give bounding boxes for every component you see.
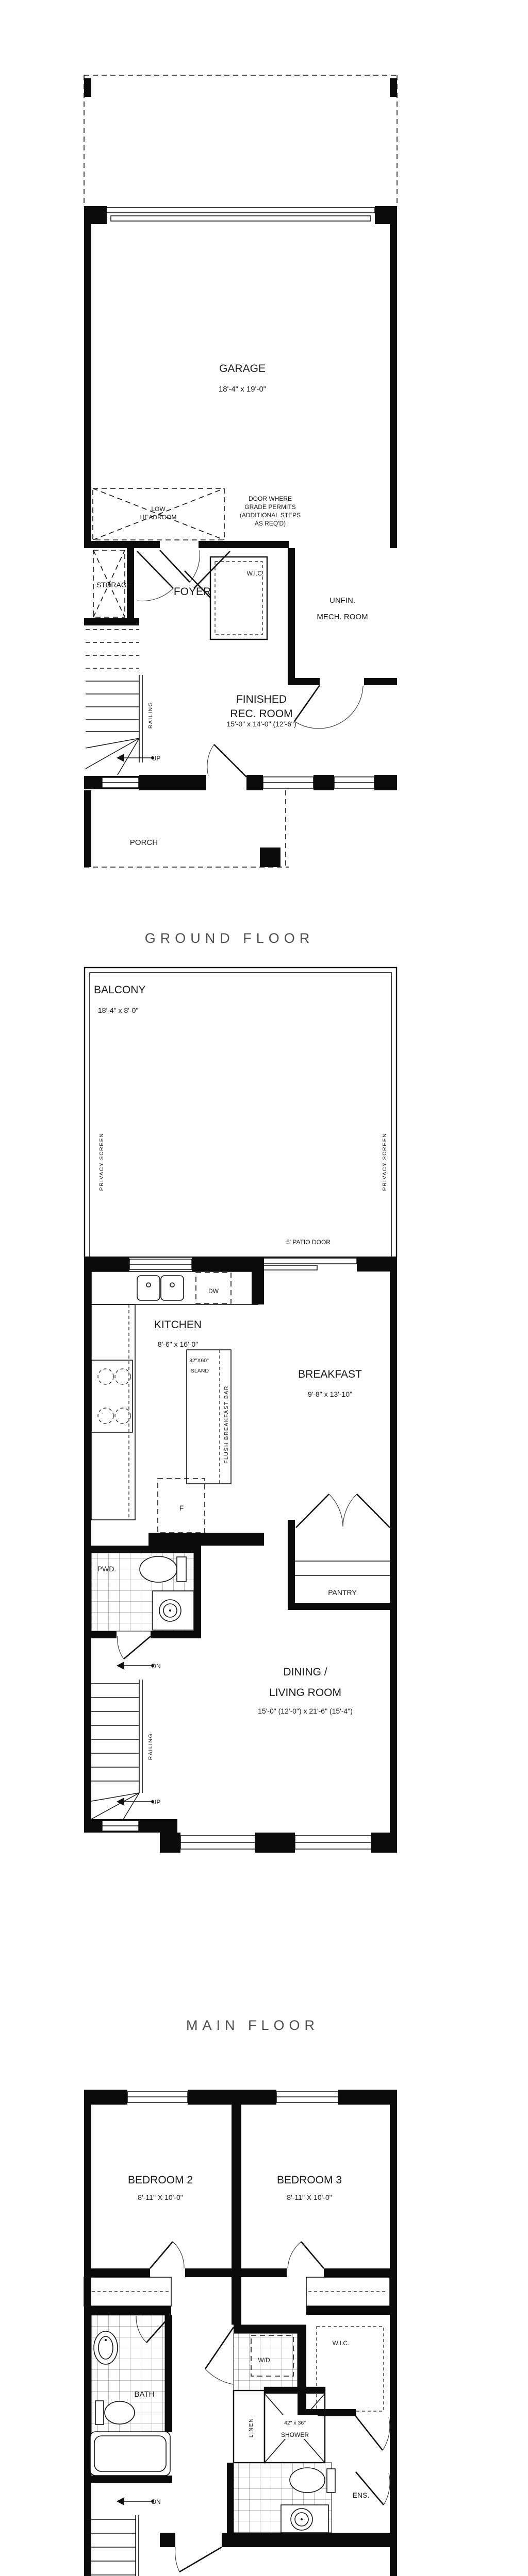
island-size-label: 32"X60": [189, 1358, 209, 1364]
kitchen-dims: 8'-6" x 16'-0": [158, 1340, 198, 1348]
floor-plan-drawing: GARAGE 18'-4" x 19'-0" DOOR WHERE GRADE …: [0, 0, 528, 2576]
second-dn-arrow: [117, 2497, 154, 2505]
ground-wic-label: W.I.C.: [247, 570, 264, 577]
garage-dims: 18'-4" x 19'-0": [219, 385, 266, 394]
bedroom3-dims: 8'-11" X 10'-0": [287, 2193, 332, 2201]
svg-text:HEADROOM: HEADROOM: [140, 514, 177, 521]
kitchen-side-counter: [91, 1304, 135, 1520]
rec-room-label-2: REC. ROOM: [230, 708, 292, 720]
dining-label-2: LIVING ROOM: [269, 1687, 341, 1699]
second-dn-label: DN: [152, 2498, 160, 2505]
porch-label: PORCH: [130, 838, 158, 847]
garage-label: GARAGE: [219, 363, 266, 375]
main-west-wall: [84, 1257, 91, 1819]
breakfast-dims: 9'-8" x 13'-10": [308, 1390, 352, 1398]
island-label: ISLAND: [189, 1368, 209, 1374]
second-floor-plan: BEDROOM 2 8'-11" X 10'-0" BEDROOM 3 8'-1…: [84, 2090, 397, 2576]
shower-label: SHOWER: [281, 2431, 309, 2438]
ground-railing-label: RAILING: [147, 702, 154, 729]
powder-room: [84, 1546, 201, 1659]
ground-floor-title: GROUND FLOOR: [145, 930, 315, 946]
svg-text:GRADE PERMITS: GRADE PERMITS: [244, 503, 295, 511]
breakfast-bar-label: FLUSH BREAKFAST BAR: [223, 1385, 229, 1464]
privacy-screen-left: PRIVACY SCREEN: [98, 1133, 105, 1191]
main-south-wall: [84, 1819, 397, 1853]
bath-room: [84, 2315, 172, 2483]
breakfast-label: BREAKFAST: [298, 1368, 362, 1380]
second-wic-label: W.I.C.: [333, 2340, 350, 2347]
second-east-wall: [390, 2090, 397, 2576]
garage-walls: [84, 206, 397, 548]
foyer-entry-door: [160, 550, 200, 582]
porch-area: [84, 790, 289, 867]
patio-door-label: 5' PATIO DOOR: [286, 1239, 331, 1246]
main-up-label: UP: [152, 1799, 161, 1806]
dishwasher-label: DW: [208, 1287, 219, 1295]
bath-label: BATH: [135, 2390, 155, 2399]
svg-text:AS REQ'D): AS REQ'D): [255, 520, 286, 527]
pantry-label: PANTRY: [328, 1588, 357, 1597]
main-floor-title: MAIN FLOOR: [186, 2018, 319, 2033]
svg-text:(ADDITIONAL STEPS: (ADDITIONAL STEPS: [240, 512, 301, 519]
grade-door-note: DOOR WHERE GRADE PERMITS (ADDITIONAL STE…: [240, 495, 301, 527]
main-railing-label: RAILING: [147, 1733, 154, 1760]
washer-dryer-label: W/D: [258, 2357, 270, 2364]
bedroom2-dims: 8'-11" X 10'-0": [138, 2193, 183, 2201]
fridge-label: F: [179, 1504, 184, 1512]
ground-floor-plan: GARAGE 18'-4" x 19'-0" DOOR WHERE GRADE …: [84, 75, 397, 946]
shower-size-label: 42" x 36": [284, 2420, 306, 2426]
mech-label-1: UNFIN.: [329, 596, 355, 605]
dining-dims: 15'-0" (12'-0") x 21'-6" (15'-4"): [258, 1707, 353, 1715]
driveway-outline: [84, 75, 397, 207]
storage-label: STORAGE: [96, 581, 131, 589]
laundry-closet: [205, 2325, 298, 2391]
mech-label-2: MECH. ROOM: [317, 613, 368, 621]
powder-label: PWD.: [97, 1565, 117, 1573]
dining-label-1: DINING /: [283, 1666, 327, 1678]
main-dn-arrow: [117, 1662, 154, 1670]
rec-room-dims: 15'-0" x 14'-0" (12'-6"): [227, 720, 296, 728]
mech-room: [288, 548, 397, 728]
floor-plan-page: GARAGE 18'-4" x 19'-0" DOOR WHERE GRADE …: [0, 0, 528, 2576]
kitchen-label: KITCHEN: [154, 1319, 202, 1331]
balcony-dims: 18'-4" x 8'-0": [98, 1006, 138, 1014]
main-floor-plan: BALCONY 18'-4" x 8'-0" PRIVACY SCREEN PR…: [84, 968, 397, 2033]
ground-up-arrow: [117, 754, 154, 762]
ensuite-label: ENS.: [353, 2491, 370, 2499]
main-north-wall: [84, 1257, 397, 1272]
privacy-screen-right: PRIVACY SCREEN: [382, 1133, 388, 1191]
rec-room-label-1: FINISHED: [236, 693, 287, 705]
low-headroom-area: LOW HEADROOM: [93, 488, 224, 540]
main-dn-label: DN: [152, 1663, 160, 1670]
second-north-wall: [84, 2090, 397, 2105]
kitchen-south-wall: [148, 1533, 264, 1546]
ground-stairs: [84, 618, 142, 775]
bedroom3-label: BEDROOM 3: [277, 2174, 342, 2186]
ground-up-label: UP: [152, 755, 161, 762]
garage-door: [84, 206, 397, 224]
svg-text:DOOR WHERE: DOOR WHERE: [249, 495, 292, 502]
second-stairs: [84, 2515, 139, 2576]
main-east-wall: [390, 1257, 397, 1853]
ensuite-room: [160, 2463, 397, 2572]
rec-room-south-wall: [84, 744, 397, 790]
main-stairs: [86, 1680, 142, 1831]
svg-text:LOW: LOW: [151, 505, 166, 513]
second-west-wall: [84, 2090, 91, 2576]
bedroom-divider-wall: [232, 2105, 241, 2268]
bedroom2-label: BEDROOM 2: [128, 2174, 193, 2186]
linen-label: LINEN: [248, 2418, 254, 2437]
balcony-label: BALCONY: [94, 984, 145, 996]
